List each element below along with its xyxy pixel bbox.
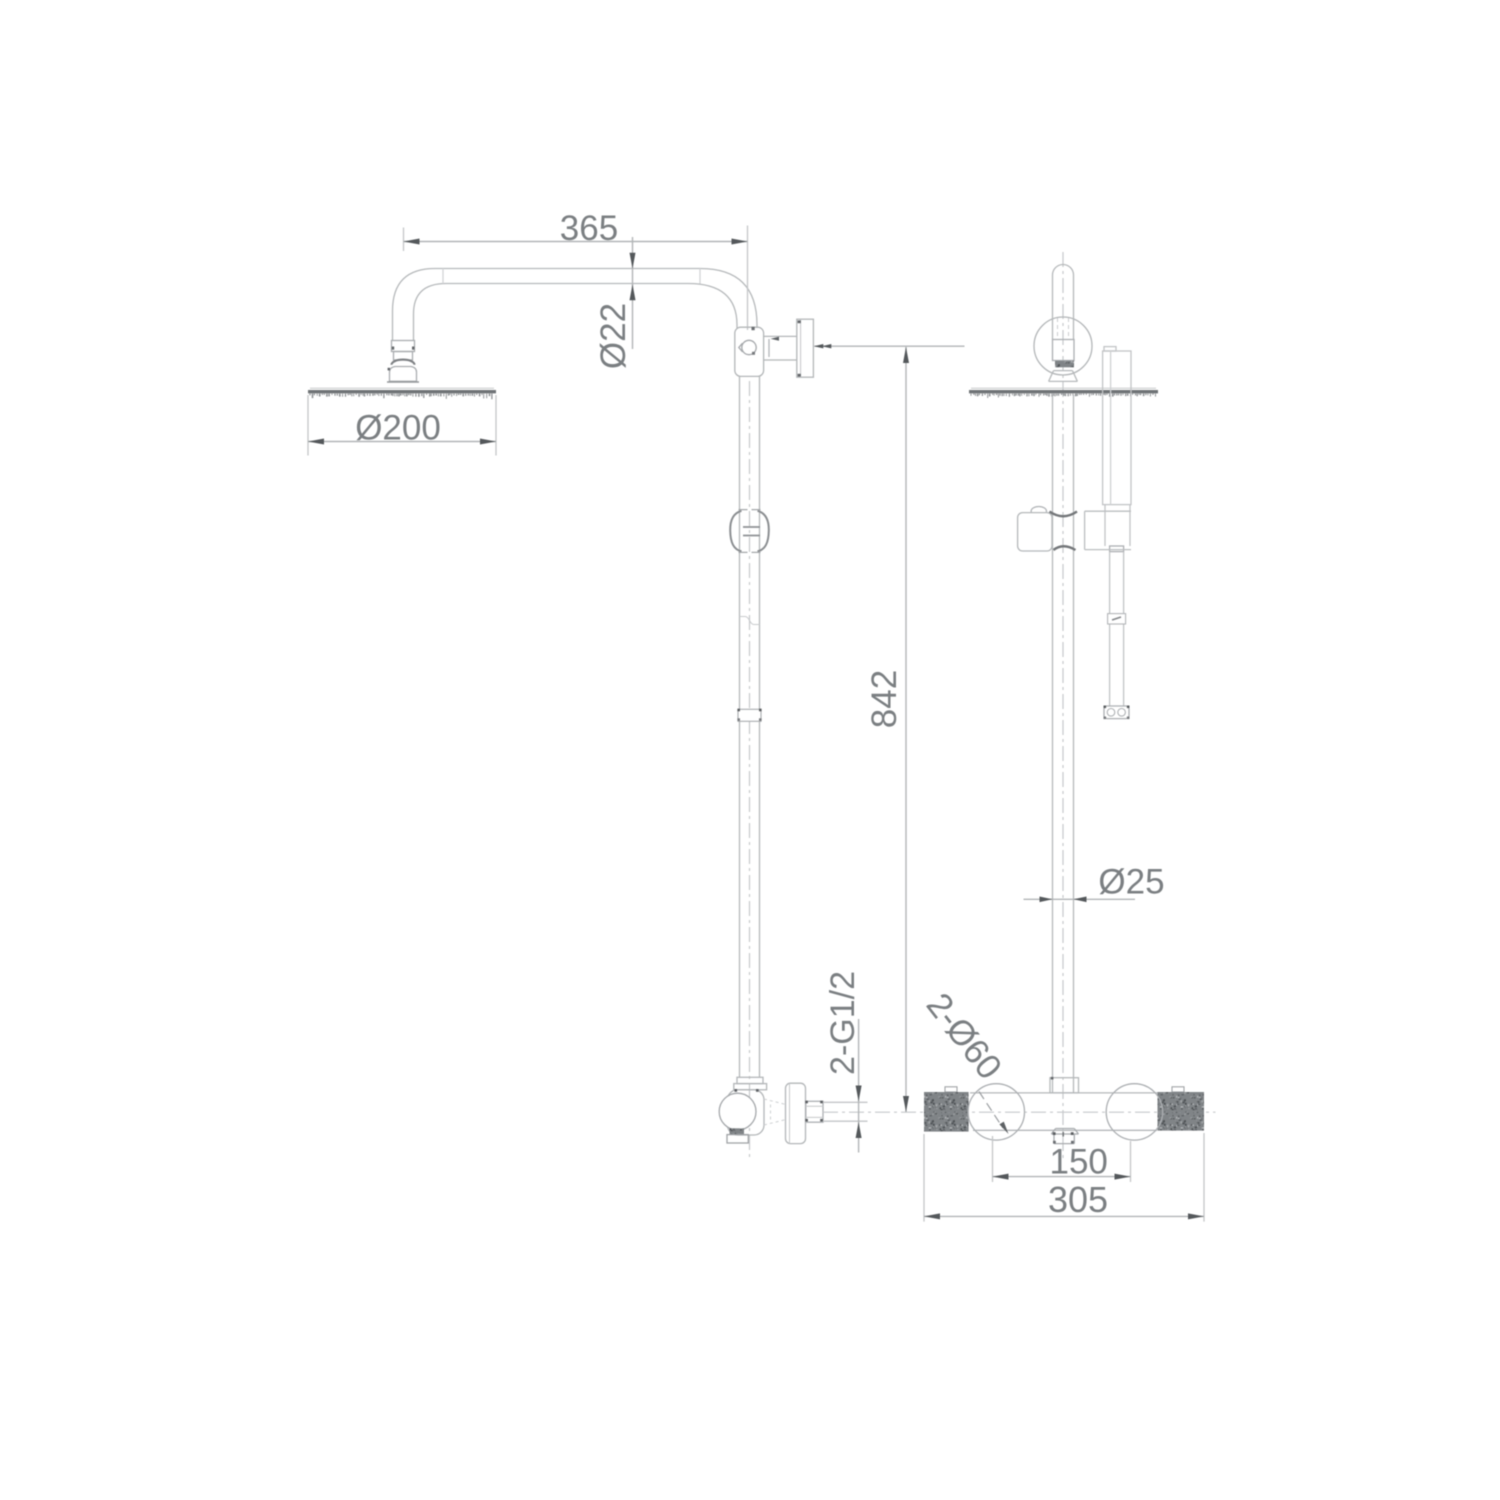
svg-text:Ø25: Ø25 [1098,863,1164,902]
svg-text:Ø22: Ø22 [594,303,633,369]
svg-text:150: 150 [1049,1143,1107,1182]
svg-text:842: 842 [865,670,904,728]
svg-text:2-G1/2: 2-G1/2 [824,971,862,1075]
svg-text:305: 305 [1048,1179,1108,1220]
svg-text:365: 365 [560,209,618,248]
svg-text:Ø200: Ø200 [355,409,441,448]
